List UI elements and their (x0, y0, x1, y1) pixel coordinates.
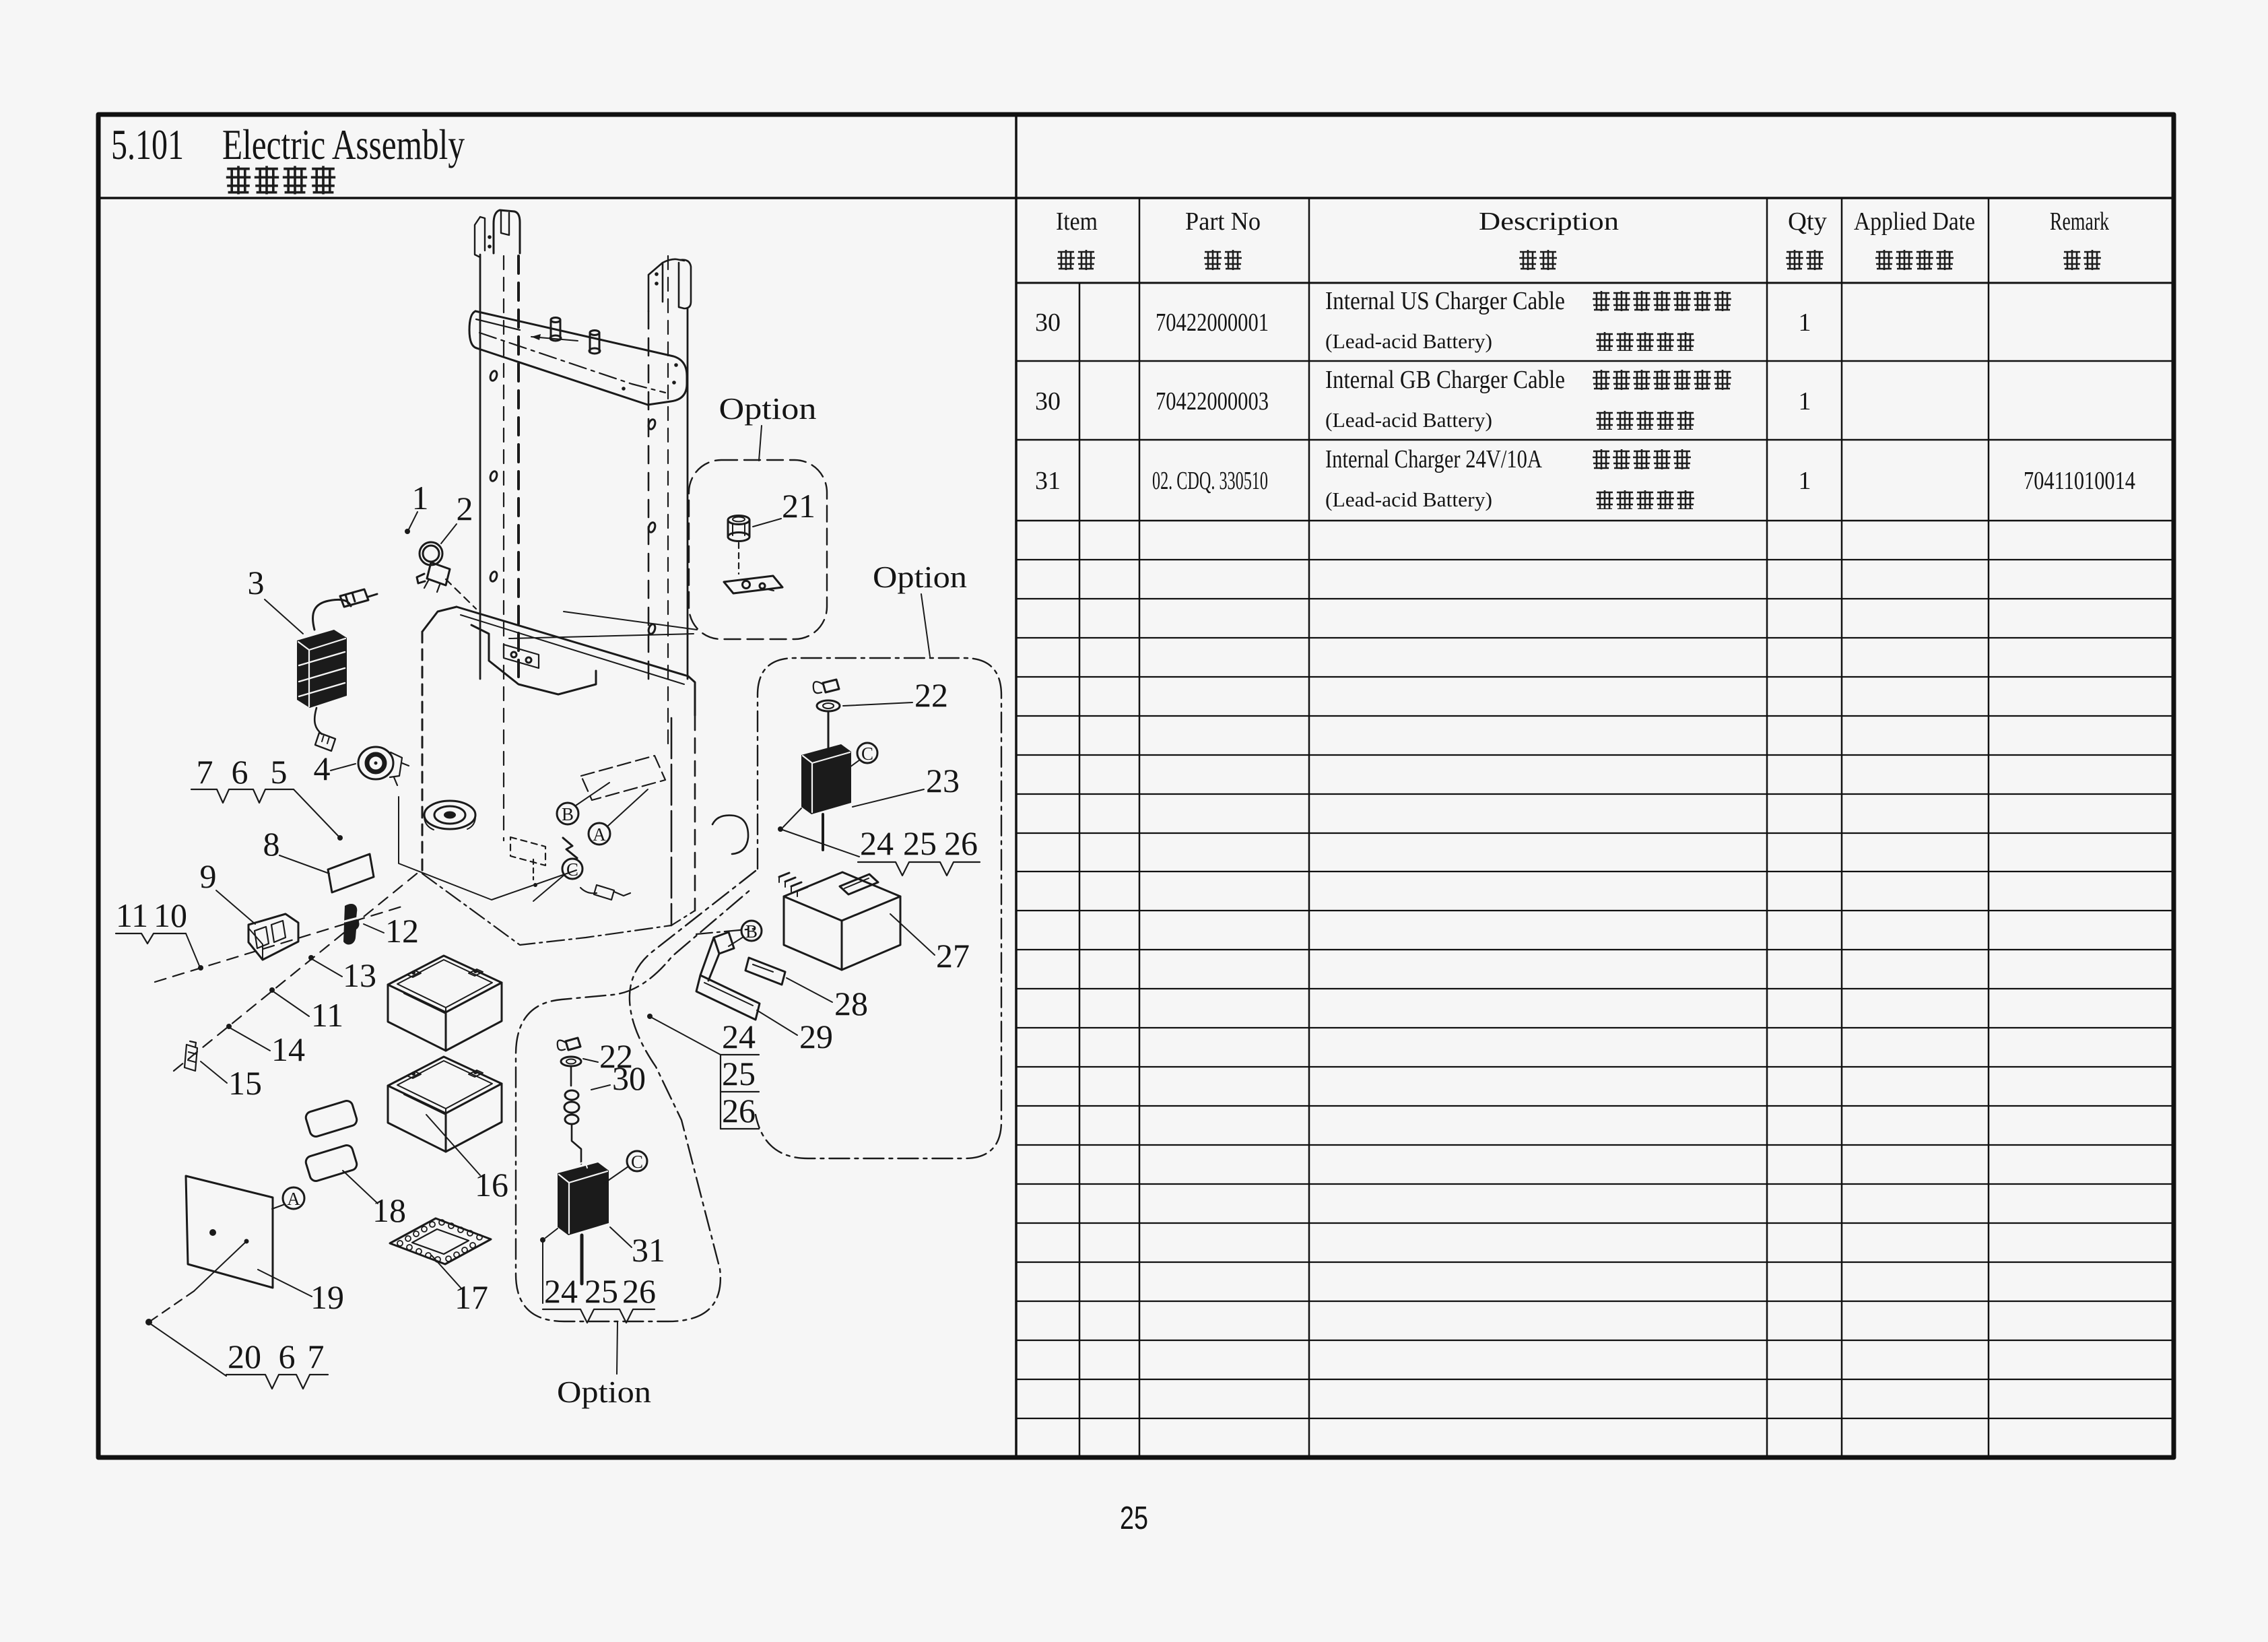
svg-text:24: 24 (722, 1018, 756, 1055)
svg-text:C: C (861, 744, 873, 764)
svg-text:6: 6 (279, 1338, 296, 1375)
svg-text:12: 12 (385, 912, 419, 950)
svg-text:Item: Item (1056, 207, 1098, 236)
svg-text:31: 31 (632, 1231, 665, 1269)
svg-text:2: 2 (457, 490, 473, 527)
svg-text:24: 24 (860, 824, 894, 862)
svg-text:15: 15 (228, 1064, 262, 1102)
svg-text:25: 25 (1120, 1501, 1148, 1536)
svg-text:25: 25 (903, 824, 937, 862)
svg-text:27: 27 (936, 937, 970, 975)
svg-text:11: 11 (116, 896, 148, 934)
svg-text:22: 22 (914, 676, 948, 714)
svg-text:5.101: 5.101 (111, 121, 184, 168)
svg-text:C: C (566, 859, 578, 880)
svg-text:A: A (593, 824, 606, 845)
svg-text:26: 26 (622, 1272, 656, 1310)
svg-text:B: B (562, 804, 574, 824)
svg-text:23: 23 (926, 762, 960, 799)
svg-text:11: 11 (311, 996, 343, 1034)
svg-text:Remark: Remark (2050, 207, 2109, 236)
svg-text:18: 18 (372, 1191, 406, 1229)
svg-text:Option: Option (873, 560, 967, 594)
svg-text:5: 5 (271, 753, 288, 791)
svg-text:8: 8 (263, 825, 280, 863)
svg-text:25: 25 (585, 1272, 618, 1310)
svg-text:28: 28 (834, 985, 868, 1022)
svg-text:7: 7 (308, 1338, 325, 1375)
svg-text:13: 13 (343, 956, 376, 994)
svg-text:(Lead-acid Battery): (Lead-acid Battery) (1325, 408, 1492, 432)
svg-text:3: 3 (248, 564, 265, 601)
svg-text:4: 4 (314, 750, 331, 787)
svg-text:19: 19 (310, 1278, 344, 1316)
svg-text:30: 30 (1035, 308, 1061, 337)
svg-text:Part No: Part No (1185, 207, 1261, 236)
svg-text:6: 6 (232, 753, 248, 791)
svg-text:Qty: Qty (1788, 207, 1827, 236)
svg-text:10: 10 (154, 896, 187, 934)
svg-text:Description: Description (1479, 207, 1619, 236)
svg-text:A: A (287, 1189, 300, 1209)
svg-text:70422000003: 70422000003 (1156, 387, 1269, 416)
svg-text:1: 1 (1799, 308, 1811, 337)
svg-text:26: 26 (722, 1092, 756, 1129)
svg-text:Option: Option (557, 1375, 651, 1409)
svg-text:Internal GB Charger Cable: Internal GB Charger Cable (1325, 366, 1565, 394)
svg-text:02. CDQ. 330510: 02. CDQ. 330510 (1152, 467, 1268, 495)
svg-text:1: 1 (1799, 467, 1811, 495)
svg-text:16: 16 (475, 1166, 508, 1204)
svg-text:7: 7 (197, 753, 213, 791)
svg-text:26: 26 (944, 824, 978, 862)
svg-text:17: 17 (455, 1278, 488, 1316)
svg-text:1: 1 (412, 479, 429, 517)
svg-text:29: 29 (799, 1018, 833, 1055)
svg-text:B: B (745, 921, 758, 942)
svg-text:24: 24 (544, 1272, 578, 1310)
svg-text:1: 1 (1799, 387, 1811, 416)
svg-text:9: 9 (200, 857, 217, 895)
svg-text:25: 25 (722, 1055, 756, 1092)
svg-text:14: 14 (271, 1030, 305, 1068)
svg-text:(Lead-acid Battery): (Lead-acid Battery) (1325, 329, 1492, 353)
svg-text:31: 31 (1035, 467, 1061, 495)
svg-text:30: 30 (612, 1059, 646, 1097)
svg-text:20: 20 (228, 1338, 261, 1375)
svg-text:Applied Date: Applied Date (1854, 207, 1975, 236)
svg-text:21: 21 (782, 487, 815, 525)
svg-text:Internal Charger 24V/10A: Internal Charger 24V/10A (1325, 445, 1542, 473)
svg-text:30: 30 (1035, 387, 1061, 416)
svg-text:70422000001: 70422000001 (1156, 308, 1269, 337)
svg-text:70411010014: 70411010014 (2024, 467, 2135, 495)
svg-text:Internal US Charger Cable: Internal US Charger Cable (1325, 287, 1565, 315)
svg-text:C: C (631, 1152, 643, 1172)
svg-text:Electric Assembly: Electric Assembly (222, 121, 465, 168)
svg-text:(Lead-acid Battery): (Lead-acid Battery) (1325, 488, 1492, 511)
svg-text:Option: Option (719, 391, 817, 426)
